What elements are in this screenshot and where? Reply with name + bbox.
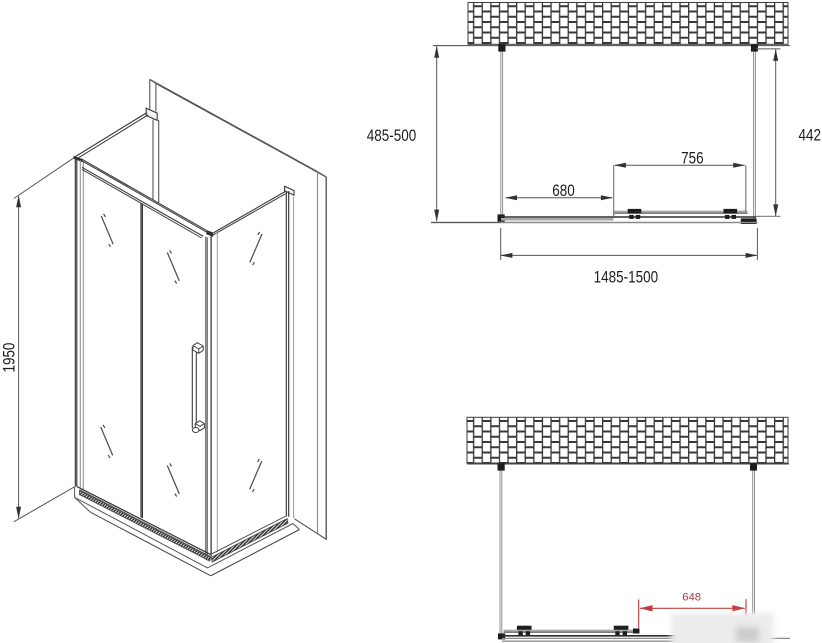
svg-text:756: 756 (681, 149, 703, 168)
svg-text:442: 442 (799, 126, 821, 145)
svg-text:648: 648 (682, 591, 701, 603)
svg-text:680: 680 (552, 182, 574, 201)
svg-text:1485-1500: 1485-1500 (594, 269, 658, 288)
svg-text:485-500: 485-500 (367, 127, 416, 146)
svg-text:1950: 1950 (0, 343, 19, 373)
